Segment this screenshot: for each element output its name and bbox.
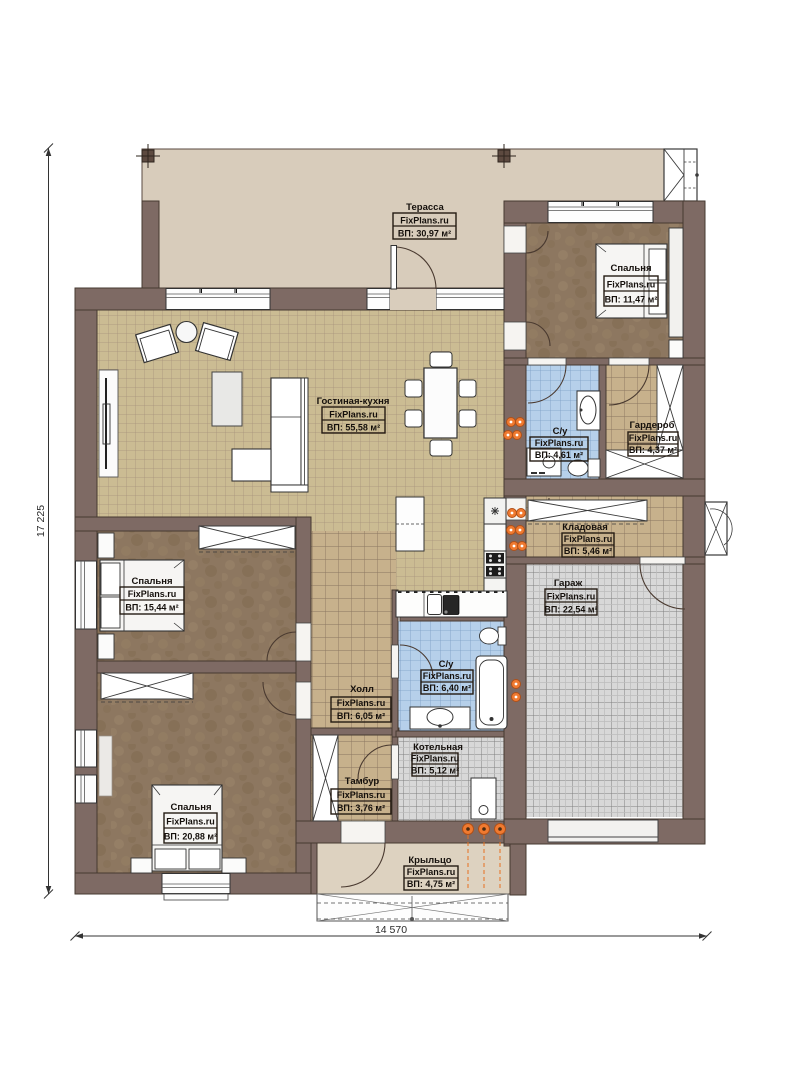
svg-text:С/у: С/у [553, 426, 569, 437]
svg-text:Тамбур: Тамбур [345, 776, 380, 787]
svg-text:FixPlans.ru: FixPlans.ru [411, 753, 460, 763]
svg-text:FixPlans.ru: FixPlans.ru [547, 591, 596, 601]
svg-text:Спальня: Спальня [131, 576, 172, 587]
svg-text:FixPlans.ru: FixPlans.ru [629, 433, 678, 443]
svg-text:ВП: 5,12 м²: ВП: 5,12 м² [411, 765, 459, 775]
svg-text:Гардероб: Гардероб [630, 420, 675, 431]
svg-text:ВП: 5,46 м²: ВП: 5,46 м² [564, 546, 612, 556]
svg-text:ВП: 6,40 м²: ВП: 6,40 м² [423, 683, 471, 693]
svg-text:FixPlans.ru: FixPlans.ru [564, 534, 613, 544]
svg-text:Спальня: Спальня [170, 802, 211, 813]
svg-text:Кладовая: Кладовая [562, 522, 608, 533]
svg-text:FixPlans.ru: FixPlans.ru [423, 671, 472, 681]
svg-text:FixPlans.ru: FixPlans.ru [400, 215, 449, 225]
svg-text:ВП: 11,47 м²: ВП: 11,47 м² [605, 294, 658, 304]
svg-text:FixPlans.ru: FixPlans.ru [337, 698, 386, 708]
svg-text:FixPlans.ru: FixPlans.ru [329, 409, 378, 419]
svg-text:ВП: 3,76 м²: ВП: 3,76 м² [337, 803, 385, 813]
svg-text:Терасса: Терасса [406, 202, 444, 213]
svg-text:ВП: 22,54 м²: ВП: 22,54 м² [544, 604, 597, 614]
svg-text:FixPlans.ru: FixPlans.ru [407, 867, 456, 877]
svg-text:FixPlans.ru: FixPlans.ru [535, 438, 584, 448]
svg-text:ВП: 4,75 м²: ВП: 4,75 м² [407, 879, 455, 889]
svg-text:ВП: 55,58 м²: ВП: 55,58 м² [327, 422, 380, 432]
svg-text:FixPlans.ru: FixPlans.ru [337, 790, 386, 800]
svg-text:ВП: 20,88 м²: ВП: 20,88 м² [164, 831, 217, 841]
svg-text:Холл: Холл [350, 684, 374, 695]
svg-text:17 225: 17 225 [35, 505, 47, 537]
svg-text:ВП: 30,97 м²: ВП: 30,97 м² [398, 228, 451, 238]
svg-text:14 570: 14 570 [375, 924, 407, 936]
svg-text:ВП: 4,61 м²: ВП: 4,61 м² [535, 450, 583, 460]
svg-text:ВП: 6,05 м²: ВП: 6,05 м² [337, 711, 385, 721]
svg-text:Гостиная-кухня: Гостиная-кухня [317, 396, 390, 407]
svg-text:ВП: 15,44 м²: ВП: 15,44 м² [125, 603, 178, 613]
svg-text:Котельная: Котельная [413, 742, 463, 753]
svg-text:Гараж: Гараж [554, 578, 583, 589]
svg-text:ВП: 4,37 м²: ВП: 4,37 м² [629, 445, 677, 455]
svg-text:Крыльцо: Крыльцо [408, 855, 451, 866]
svg-text:FixPlans.ru: FixPlans.ru [607, 279, 656, 289]
svg-text:С/у: С/у [439, 659, 455, 670]
svg-text:Спальня: Спальня [610, 263, 651, 274]
svg-text:FixPlans.ru: FixPlans.ru [128, 589, 177, 599]
svg-text:FixPlans.ru: FixPlans.ru [166, 816, 215, 826]
